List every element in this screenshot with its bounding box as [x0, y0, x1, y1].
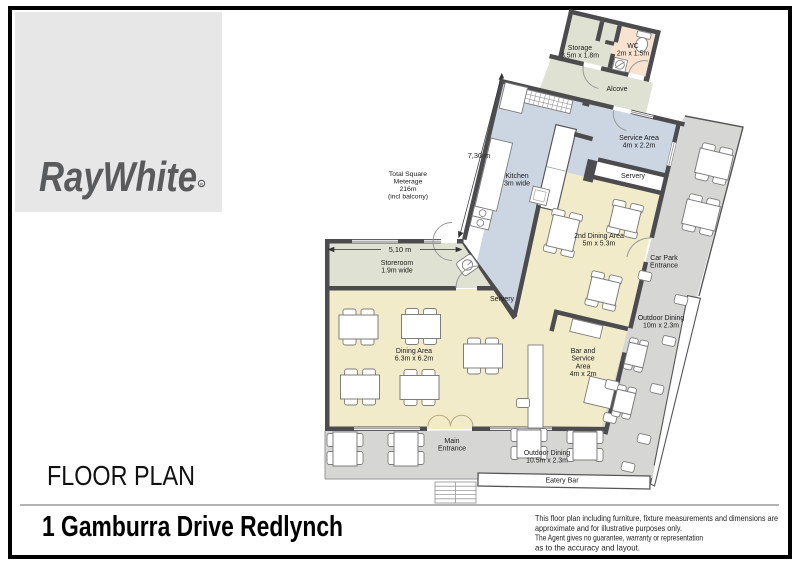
svg-text:Servery: Servery — [621, 173, 646, 180]
svg-text:as to the accuracy and layout.: as to the accuracy and layout. — [535, 542, 640, 552]
svg-text:Outdoor Dining10m x 2.3m: Outdoor Dining10m x 2.3m — [638, 315, 685, 330]
svg-text:Total SquareMeterage216m(incl: Total SquareMeterage216m(incl balcony) — [388, 171, 428, 200]
svg-text:approximate and for illustrati: approximate and for illustrative purpose… — [535, 523, 682, 533]
svg-text:FLOOR PLAN: FLOOR PLAN — [47, 460, 195, 491]
svg-text:Eatery Bar: Eatery Bar — [545, 478, 579, 485]
svg-text:5,10 m: 5,10 m — [389, 245, 412, 254]
svg-text:Service Area4m x 2.2m: Service Area4m x 2.2m — [619, 135, 659, 150]
svg-text:RayWhite: RayWhite — [39, 153, 197, 200]
svg-text:Alcove: Alcove — [606, 86, 627, 93]
svg-text:Car ParkEntrance: Car ParkEntrance — [650, 255, 678, 270]
svg-text:This floor plan including furn: This floor plan including furniture, fix… — [535, 513, 778, 523]
svg-text:Storeroom1.9m wide: Storeroom1.9m wide — [381, 260, 413, 275]
svg-text:The Agent gives no guarantee,: The Agent gives no guarantee, warranty o… — [535, 533, 703, 543]
svg-text:Kitchen3m wide: Kitchen3m wide — [504, 173, 530, 188]
svg-text:Servery: Servery — [490, 296, 515, 303]
svg-text:Outdoor Dining10.5m x 2.3m: Outdoor Dining10.5m x 2.3m — [524, 450, 571, 465]
svg-text:7,30 m: 7,30 m — [468, 151, 491, 160]
svg-text:1 Gamburra Drive Redlynch: 1 Gamburra Drive Redlynch — [42, 511, 343, 543]
svg-text:Dining Area6.3m x 6.2m: Dining Area6.3m x 6.2m — [395, 348, 434, 363]
